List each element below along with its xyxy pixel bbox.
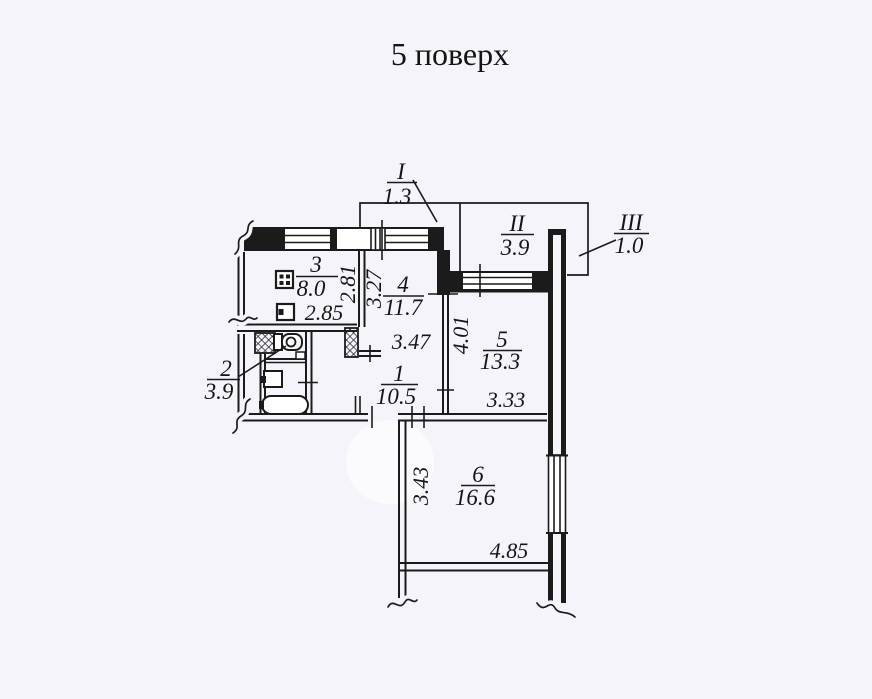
room-6-label: 6 16.6 [455,462,496,510]
kitchen-fixtures [276,271,294,320]
dim-room5-depth: 4.01 [448,316,473,355]
room-1-number: 1 [393,361,405,386]
toilet-icon [274,334,302,350]
kitchen-bottom-wall [237,325,357,332]
room-4-number: 4 [397,272,409,297]
room-1-label: 1 10.5 [376,361,418,409]
balcony-3-label: III 1.0 [614,210,649,258]
dim-kitchen-width: 2.85 [305,300,344,325]
room-6-area: 16.6 [455,485,496,510]
balcony-3-area: 1.0 [615,233,644,258]
north-wall [245,220,443,260]
room-3-label: 3 8.0 [296,252,338,301]
bathtub-icon [259,396,308,414]
leader-line-balcony-1 [413,180,437,222]
ventilation-shaft-icon [345,328,358,357]
window-icon [546,455,568,533]
balcony-2-label: II 3.9 [500,211,534,260]
balcony-3-numeral: III [619,210,644,235]
dim-room4-width: 3.47 [391,329,432,354]
wash-basin-icon [261,371,282,387]
balcony-2-numeral: II [508,211,526,236]
balcony-door-frame [371,228,385,250]
room-5-area: 13.3 [480,349,520,374]
dim-room6-depth: 3.43 [408,467,433,507]
room-2-area: 3.9 [204,379,234,404]
room-4-label: 4 11.7 [383,272,424,320]
ventilation-shaft-icon [255,333,275,353]
balcony-1-area: 1.3 [383,184,412,209]
floorplan-page: { "title": "5 поверх", "plan": { "ink_co… [0,0,872,699]
dim-kitchen-depth: 2.81 [335,265,360,304]
room-2-label: 2 3.9 [204,356,240,404]
dim-room6-width: 4.85 [490,538,529,563]
east-wall [546,229,568,603]
room-3-number: 3 [309,252,322,277]
dim-room5-width: 3.33 [486,387,526,412]
cistern-icon [296,352,305,359]
kitchen-sink-icon [277,304,294,320]
wall-segment [437,250,450,295]
room-5-label: 5 13.3 [480,327,522,374]
room-4-area: 11.7 [384,295,424,320]
leader-line-balcony-3 [579,240,616,256]
floorplan-drawing: I 1.3 II 3.9 III 1.0 3 8.0 4 11.7 5 13.3… [0,0,872,699]
room-2-number: 2 [220,356,232,381]
balcony-1-label: I 1.3 [383,159,417,209]
dim-room4-depth: 3.27 [361,269,386,310]
stove-icon [276,271,293,288]
room-1-area: 10.5 [376,384,416,409]
balcony-2-area: 3.9 [500,235,530,260]
room-6-number: 6 [472,462,484,487]
balcony-1-numeral: I [396,159,406,184]
west-wall [239,252,245,413]
room-3-area: 8.0 [297,276,326,301]
bathroom [255,332,318,414]
